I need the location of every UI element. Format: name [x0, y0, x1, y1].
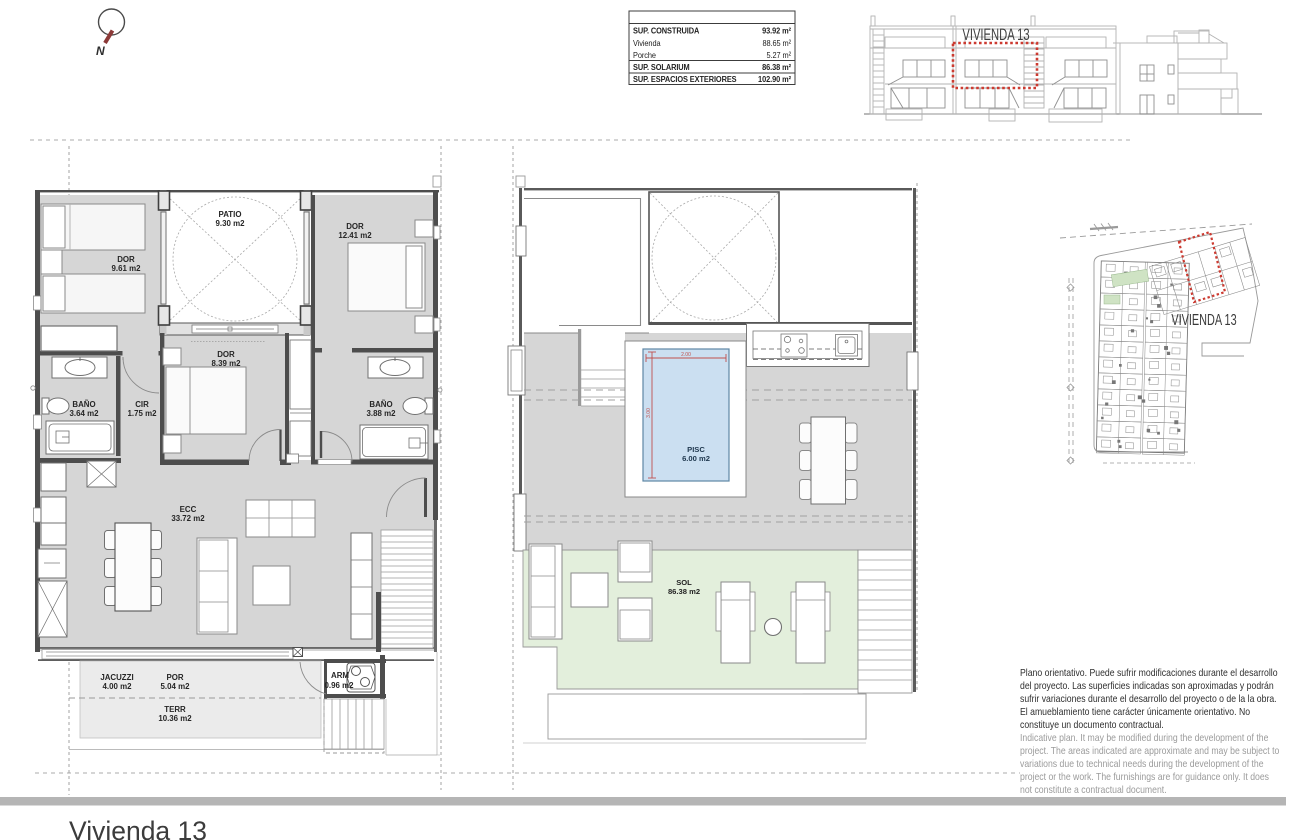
svg-text:Porche: Porche [633, 51, 657, 61]
svg-text:del proyecto. Las superficies: del proyecto. Las superficies indicadas … [1020, 680, 1274, 691]
svg-text:93.92 m²: 93.92 m² [762, 26, 791, 36]
svg-text:DOR: DOR [217, 350, 235, 359]
svg-text:JACUZZI: JACUZZI [100, 673, 133, 682]
svg-text:CIR: CIR [135, 400, 149, 409]
svg-text:POR: POR [166, 673, 183, 682]
svg-text:102.90 m²: 102.90 m² [758, 75, 791, 85]
svg-text:2.00: 2.00 [681, 352, 691, 358]
svg-text:86.38 m²: 86.38 m² [762, 63, 791, 73]
svg-text:6.00 m2: 6.00 m2 [682, 454, 710, 463]
svg-text:10.36 m2: 10.36 m2 [158, 714, 192, 723]
svg-text:12.41 m2: 12.41 m2 [338, 231, 372, 240]
svg-text:El amueblamiento tiene carácte: El amueblamiento tiene carácter únicamen… [1020, 706, 1250, 717]
svg-text:PISC: PISC [687, 445, 705, 454]
svg-text:constituye un documento contra: constituye un documento contractual. [1020, 719, 1164, 730]
svg-text:SOL: SOL [676, 578, 692, 587]
svg-text:TERR: TERR [164, 705, 186, 714]
svg-text:Plano orientativo. Puede sufri: Plano orientativo. Puede sufrir modifica… [1020, 667, 1278, 678]
svg-text:Vivienda 13: Vivienda 13 [69, 816, 207, 840]
svg-text:sufrir variaciones durante el: sufrir variaciones durante el desarrollo… [1020, 693, 1277, 704]
svg-text:DOR: DOR [346, 222, 364, 231]
svg-text:9.30 m2: 9.30 m2 [216, 219, 246, 228]
svg-text:ARM: ARM [331, 671, 349, 680]
svg-text:not constitute a contractual d: not constitute a contractual document. [1020, 784, 1167, 795]
svg-text:1.75 m2: 1.75 m2 [128, 409, 158, 418]
svg-text:BAÑO: BAÑO [369, 400, 392, 409]
svg-text:ECC: ECC [180, 505, 197, 514]
svg-text:project or the work. The furni: project or the work. The furnishings are… [1020, 771, 1269, 782]
svg-text:VIVIENDA 13: VIVIENDA 13 [962, 25, 1029, 44]
svg-text:Indicative plan. It may be mod: Indicative plan. It may be modified duri… [1020, 732, 1268, 743]
svg-text:5.27 m²: 5.27 m² [767, 51, 792, 61]
svg-text:project. The areas indicated a: project. The areas indicated are approxi… [1020, 745, 1279, 756]
svg-text:3.88 m2: 3.88 m2 [367, 409, 397, 418]
svg-text:SUP. CONSTRUIDA: SUP. CONSTRUIDA [633, 26, 700, 36]
svg-text:33.72 m2: 33.72 m2 [171, 514, 205, 523]
svg-text:BAÑO: BAÑO [72, 400, 95, 409]
svg-text:0.96 m2: 0.96 m2 [325, 681, 355, 690]
svg-text:4.00 m2: 4.00 m2 [103, 682, 133, 691]
svg-text:86.38 m2: 86.38 m2 [668, 587, 700, 596]
svg-text:DOR: DOR [117, 255, 135, 264]
svg-text:VIVIENDA 13: VIVIENDA 13 [1171, 311, 1236, 329]
svg-text:SUP. ESPACIOS EXTERIORES: SUP. ESPACIOS EXTERIORES [633, 75, 737, 85]
svg-text:variations due to technical ne: variations due to technical needs during… [1020, 758, 1264, 769]
svg-text:3.64 m2: 3.64 m2 [70, 409, 100, 418]
svg-text:N: N [96, 44, 105, 58]
svg-text:3.00: 3.00 [646, 408, 652, 418]
svg-text:88.65 m²: 88.65 m² [763, 39, 792, 49]
svg-text:SUP. SOLARIUM: SUP. SOLARIUM [633, 63, 690, 73]
svg-text:Vivienda: Vivienda [633, 39, 661, 49]
svg-text:9.61 m2: 9.61 m2 [112, 264, 142, 273]
svg-text:5.04 m2: 5.04 m2 [161, 682, 191, 691]
svg-text:PATIO: PATIO [219, 210, 242, 219]
